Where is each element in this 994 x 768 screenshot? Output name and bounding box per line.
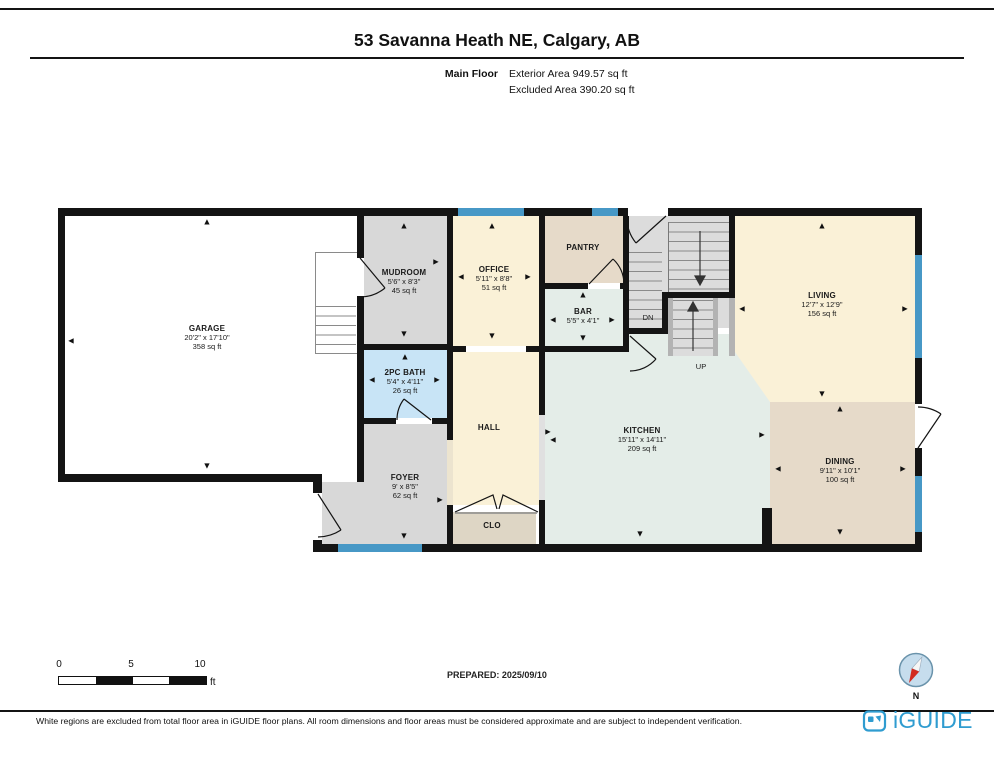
dimension-arrow-down-icon: ▼: [579, 334, 588, 343]
footer-divider: [0, 710, 994, 712]
dimension-arrow-down-icon: ▼: [488, 332, 497, 341]
dimension-arrow-up-icon: ▲: [579, 291, 588, 300]
stair-dn-door-swing: [630, 336, 656, 371]
dimension-arrow-up-icon: ▲: [818, 222, 827, 231]
dimension-arrow-up-icon: ▲: [203, 218, 212, 227]
dimension-arrow-right-icon: ►: [899, 465, 908, 474]
dimension-arrow-right-icon: ►: [432, 258, 441, 267]
dimension-arrow-left-icon: ◄: [549, 436, 558, 445]
dimension-arrow-up-icon: ▲: [836, 405, 845, 414]
door-swing-layer: [0, 0, 994, 768]
prepared-date: PREPARED: 2025/09/10: [0, 670, 994, 680]
scale-tick-5: 5: [128, 659, 134, 670]
dimension-arrow-down-icon: ▼: [636, 530, 645, 539]
bath-door-swing: [397, 399, 431, 420]
dimension-arrow-down-icon: ▼: [203, 462, 212, 471]
dimension-arrow-right-icon: ►: [433, 376, 442, 385]
dimension-arrow-right-icon: ►: [544, 428, 553, 437]
dimension-arrow-left-icon: ◄: [67, 337, 76, 346]
scale-tick-10: 10: [194, 659, 205, 670]
dimension-arrow-right-icon: ►: [436, 496, 445, 505]
dimension-arrow-left-icon: ◄: [457, 273, 466, 282]
dimension-arrow-left-icon: ◄: [368, 376, 377, 385]
dimension-arrow-right-icon: ►: [524, 273, 533, 282]
north-label: N: [913, 691, 920, 701]
dimension-arrow-right-icon: ►: [901, 305, 910, 314]
iguide-logo-text: iGUIDE: [893, 707, 973, 734]
dimension-arrow-right-icon: ►: [608, 316, 617, 325]
iguide-logo-icon: [862, 709, 888, 733]
dining-door-swing: [918, 407, 941, 448]
dimension-arrow-left-icon: ◄: [738, 305, 747, 314]
closet-bifold-doors: [455, 495, 538, 512]
dimension-arrow-right-icon: ►: [758, 431, 767, 440]
dimension-arrow-down-icon: ▼: [818, 390, 827, 399]
dimension-arrow-left-icon: ◄: [549, 316, 558, 325]
dimension-arrow-up-icon: ▲: [488, 222, 497, 231]
iguide-logo: iGUIDE: [862, 707, 973, 734]
disclaimer-text: White regions are excluded from total fl…: [36, 716, 836, 726]
entry-door-swing: [627, 216, 666, 243]
floor-plan-page: 53 Savanna Heath NE, Calgary, AB Main Fl…: [0, 0, 994, 768]
dimension-arrow-down-icon: ▼: [836, 528, 845, 537]
dimension-arrow-up-icon: ▲: [400, 222, 409, 231]
dimension-arrow-down-icon: ▼: [400, 330, 409, 339]
garage-door-swing: [360, 258, 385, 297]
compass-icon: [896, 650, 936, 690]
pantry-door-swing: [589, 259, 624, 284]
foyer-door-swing: [318, 494, 341, 537]
dimension-arrow-left-icon: ◄: [774, 465, 783, 474]
dimension-arrow-down-icon: ▼: [400, 532, 409, 541]
scale-tick-0: 0: [56, 659, 62, 670]
dimension-arrow-up-icon: ▲: [401, 353, 410, 362]
